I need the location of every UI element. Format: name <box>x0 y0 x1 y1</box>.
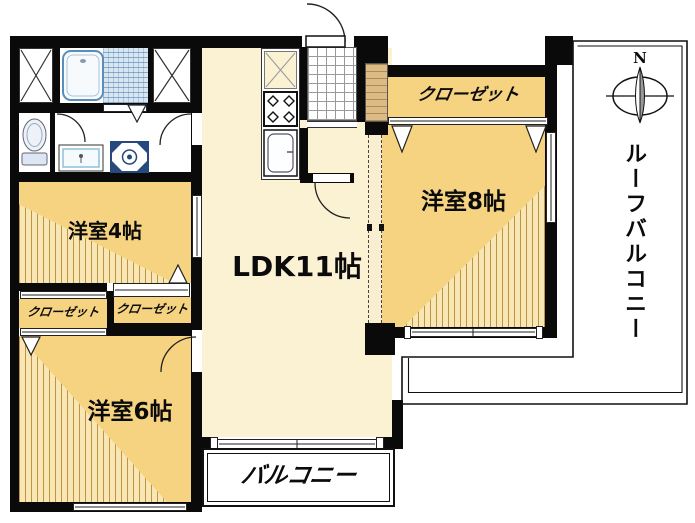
bath-door-opening <box>103 104 147 112</box>
wall <box>392 400 403 448</box>
washroom-door-opening <box>192 113 202 145</box>
label-roof-balcony: ルーフバルコニー <box>617 142 649 372</box>
bathroom-floor <box>60 48 103 103</box>
bathroom-tile <box>103 48 148 103</box>
label-closet-8: クローゼット <box>386 86 549 105</box>
label-balcony: バルコニー <box>200 464 397 489</box>
wall <box>365 323 395 355</box>
window-post <box>536 326 543 339</box>
wall <box>357 63 365 122</box>
room-label-ldk: LDK11帖 <box>202 252 392 283</box>
entrance-door-icon <box>306 4 345 47</box>
storage-x-left <box>19 48 53 103</box>
hall-door-opening <box>313 174 350 182</box>
western8-south-window <box>410 328 537 337</box>
floor-hatch <box>382 125 545 327</box>
wall <box>148 48 153 103</box>
wall <box>19 283 107 291</box>
compass-north-label: N <box>630 50 650 67</box>
wall <box>10 36 302 48</box>
wall <box>53 48 60 103</box>
refrigerator-space <box>264 51 297 89</box>
wall <box>10 36 19 512</box>
wall <box>365 120 388 135</box>
closet8-folding-door <box>388 117 548 125</box>
wall <box>19 172 191 182</box>
wall <box>300 128 308 173</box>
compass-icon <box>606 67 674 123</box>
entrance-tile-floor <box>307 47 357 121</box>
storage-x-right <box>153 48 191 103</box>
closet4-folding-door <box>113 283 190 297</box>
label-closet-6: クローゼット <box>18 306 108 319</box>
ldk-western8-partition <box>368 135 382 323</box>
western6-south-window <box>73 503 187 511</box>
entrance-step <box>307 121 357 128</box>
room-label-western4: 洋室4帖 <box>19 220 191 242</box>
wall <box>50 113 55 172</box>
closet6-door-top <box>20 291 107 299</box>
wall <box>388 65 552 77</box>
room-label-western8: 洋室8帖 <box>382 190 545 215</box>
shoe-cabinet <box>365 63 388 122</box>
closet6-door-bottom <box>20 328 107 336</box>
window-post <box>404 326 411 339</box>
wall <box>113 323 191 336</box>
western8-east-window <box>546 132 556 223</box>
western6-door-opening <box>192 330 202 372</box>
washroom-floor <box>19 113 191 172</box>
western4-sliding-door <box>192 195 202 258</box>
room-label-western6: 洋室6帖 <box>45 400 215 425</box>
wall <box>300 47 307 120</box>
wall <box>545 36 573 65</box>
room-western8-floor <box>382 125 545 327</box>
wall <box>354 36 388 63</box>
floor-plan: LDK11帖 洋室4帖 洋室6帖 洋室8帖 クローゼット クローゼット クローゼ… <box>0 0 695 523</box>
label-closet-4: クローゼット <box>112 303 192 316</box>
